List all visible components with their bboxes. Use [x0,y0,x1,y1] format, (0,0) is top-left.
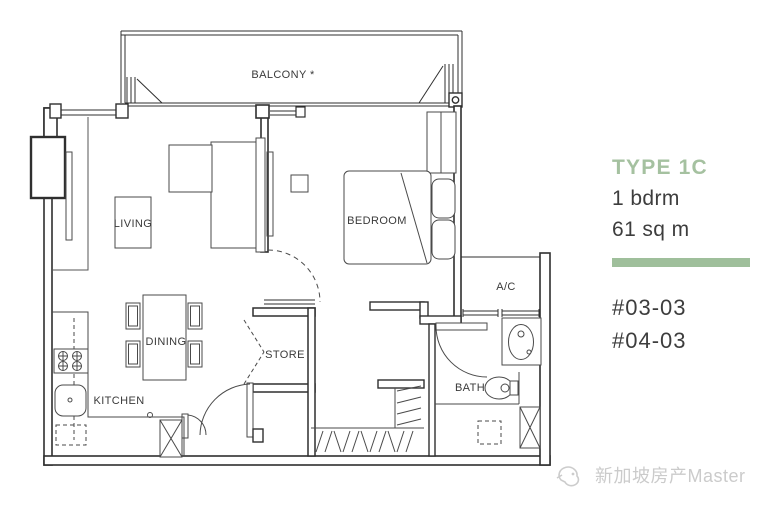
store-label: STORE [265,349,305,361]
bedroom-balcony-panel [270,107,305,117]
exterior-walls [44,106,550,465]
kitchen-label: KITCHEN [93,395,144,407]
accent-divider-bar [612,258,750,267]
balcony-corner-post [449,93,462,107]
tv-console [66,152,72,240]
water-heater [520,407,540,448]
unit-info-panel: TYPE 1C 1 bdrm 61 sq m #03-03 #04-03 [612,156,757,357]
watermark-text: 新加坡房产Master [595,462,746,488]
balcony-label: BALCONY * [251,69,315,81]
unit-area: 61 sq m [612,218,757,242]
ac-label: A/C [496,281,516,293]
fridge [160,420,182,457]
bath-door [436,323,487,377]
floor-plan-page: LIVING BEDROOM [0,0,774,514]
top-window [50,104,128,118]
unit-numbers: #03-03 #04-03 [612,291,757,357]
shower-drain [478,421,501,444]
bath-label: BATH [455,382,485,394]
watermark: 新加坡房产Master [553,458,746,492]
unit-number: #03-03 [612,291,757,324]
dining-label: DINING [146,336,187,348]
bedroom-count: 1 bdrm [612,187,757,211]
stove [54,349,88,373]
store-folding-door [244,320,264,384]
bedroom-label: BEDROOM [347,215,407,227]
wardrobe [427,112,456,173]
vanity-sink [502,318,541,365]
watermark-logo-icon [553,458,591,492]
toilet [485,377,518,399]
sofa [169,138,265,252]
living-label: LIVING [114,218,152,230]
dishwasher-space [56,425,86,445]
nightstand [291,175,308,192]
unit-number: #04-03 [612,324,757,357]
kitchen-door [182,414,206,438]
bedroom-door-arc [268,250,320,302]
unit-type-label: TYPE 1C [612,156,757,180]
kitchen-sink [55,385,86,416]
structural-column [31,137,65,198]
hallway-wardrobe [311,380,424,452]
